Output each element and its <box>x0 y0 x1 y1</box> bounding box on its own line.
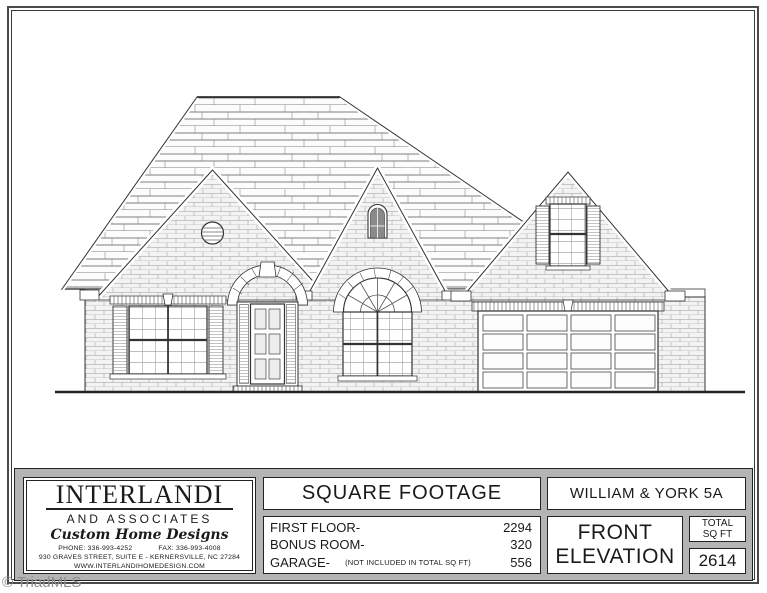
gable-vent-circle <box>202 222 224 244</box>
total-label-line2: SQ FT <box>703 529 732 540</box>
company-fax: FAX: 336-993-4008 <box>158 545 220 552</box>
plan-sheet: INTERLANDI AND ASSOCIATES Custom Home De… <box>0 0 767 593</box>
sf-value: 320 <box>486 537 532 552</box>
company-website: WWW.INTERLANDIHOMEDESIGN.COM <box>74 563 205 570</box>
company-logo-inner: INTERLANDI AND ASSOCIATES Custom Home De… <box>26 480 253 571</box>
square-footage-header-box: SQUARE FOOTAGE <box>263 477 541 510</box>
sf-note: (NOT INCLUDED IN TOTAL SQ FT) <box>330 558 486 567</box>
sf-value: 2294 <box>486 520 532 535</box>
view-name-box: FRONT ELEVATION <box>547 516 683 574</box>
triadmls-watermark: © TriadMLS <box>2 574 81 591</box>
company-name: INTERLANDI <box>46 481 233 510</box>
sf-row-bonus-room: BONUS ROOM- 320 <box>270 537 532 552</box>
sf-label: BONUS ROOM- <box>270 537 365 552</box>
sf-label: FIRST FLOOR- <box>270 520 360 535</box>
view-name-line1: FRONT <box>578 521 653 545</box>
view-name-line2: ELEVATION <box>555 545 674 569</box>
sf-label: GARAGE- <box>270 555 330 570</box>
company-logo-box: INTERLANDI AND ASSOCIATES Custom Home De… <box>23 477 256 574</box>
sf-row-garage: GARAGE- (NOT INCLUDED IN TOTAL SQ FT) 55… <box>270 555 532 570</box>
plan-name-box: WILLIAM & YORK 5A <box>547 477 746 510</box>
company-phone: PHONE: 336-993-4252 <box>58 545 132 552</box>
company-subname: AND ASSOCIATES <box>67 512 213 526</box>
total-sqft-label-box: TOTAL SQ FT <box>689 516 746 542</box>
garage-door <box>472 300 664 392</box>
square-footage-table: FIRST FLOOR- 2294 BONUS ROOM- 320 GARAGE… <box>263 516 541 574</box>
sf-value: 556 <box>486 555 532 570</box>
gable-window-with-shutters <box>536 197 600 270</box>
front-elevation-drawing <box>0 0 767 468</box>
title-block: INTERLANDI AND ASSOCIATES Custom Home De… <box>14 468 753 581</box>
company-phone-fax: PHONE: 336-993-4252 FAX: 336-993-4008 <box>58 545 220 552</box>
sf-row-first-floor: FIRST FLOOR- 2294 <box>270 520 532 535</box>
plan-name: WILLIAM & YORK 5A <box>570 485 723 502</box>
palladian-window <box>334 268 422 381</box>
company-address: 930 GRAVES STREET, SUITE E - KERNERSVILL… <box>39 554 240 561</box>
total-sqft-value: 2614 <box>699 551 737 571</box>
total-label-line1: TOTAL <box>702 518 733 529</box>
square-footage-header: SQUARE FOOTAGE <box>302 482 502 505</box>
left-double-window <box>110 294 226 379</box>
total-sqft-value-box: 2614 <box>689 548 746 574</box>
company-tagline: Custom Home Designs <box>51 527 229 543</box>
gable-arched-window <box>368 205 387 239</box>
